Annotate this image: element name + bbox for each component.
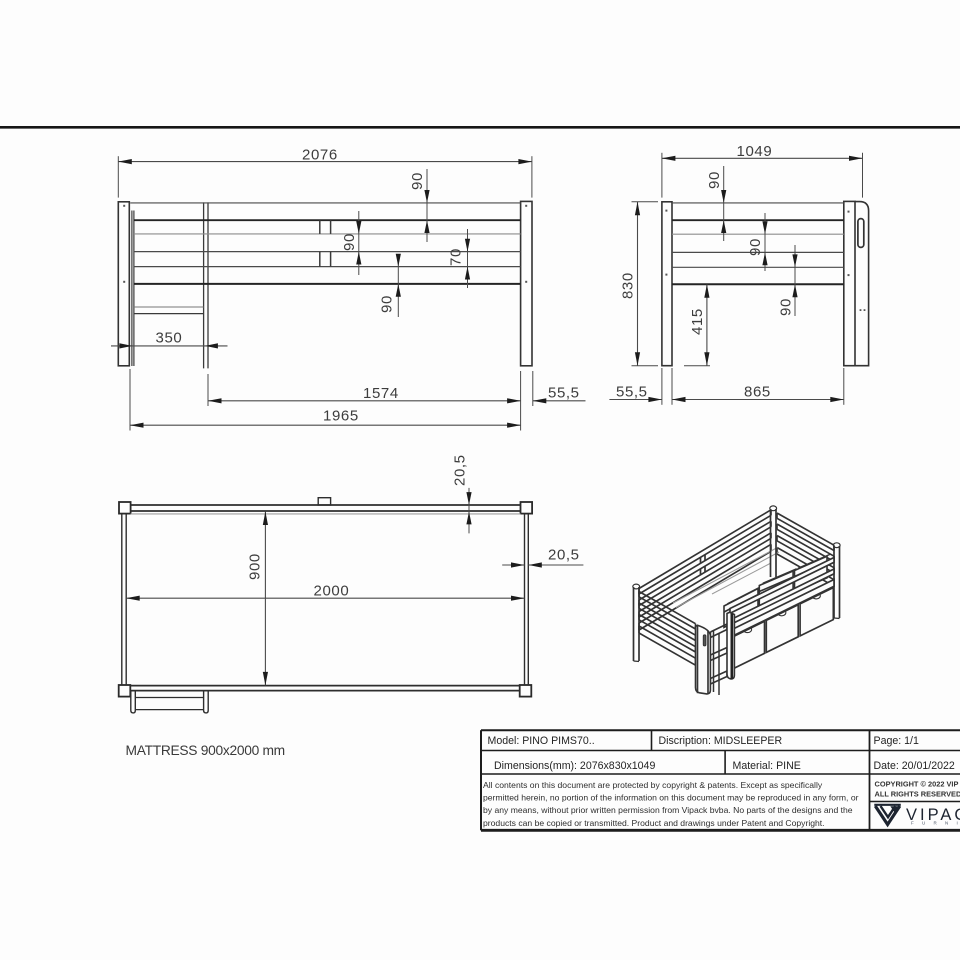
- svg-text:830: 830: [620, 272, 637, 299]
- svg-text:ALL RIGHTS RESERVED: ALL RIGHTS RESERVED: [875, 790, 960, 799]
- svg-text:MATTRESS 900x2000 mm: MATTRESS 900x2000 mm: [126, 743, 285, 758]
- svg-text:90: 90: [747, 238, 764, 256]
- svg-text:Page: 1/1: Page: 1/1: [874, 735, 919, 747]
- svg-text:Material: PINE: Material: PINE: [733, 760, 801, 772]
- svg-text:by any means, without prior wr: by any means, without prior written perm…: [483, 805, 853, 815]
- svg-text:products can be copied or tran: products can be copied or transmitted. P…: [483, 818, 825, 828]
- svg-text:1049: 1049: [737, 143, 773, 160]
- svg-text:415: 415: [689, 308, 706, 335]
- svg-text:90: 90: [341, 233, 358, 251]
- svg-text:1965: 1965: [323, 408, 359, 425]
- svg-text:865: 865: [744, 384, 771, 401]
- svg-text:55,5: 55,5: [616, 384, 648, 401]
- svg-text:900: 900: [247, 553, 264, 580]
- svg-text:20,5: 20,5: [452, 454, 469, 486]
- svg-text:90: 90: [778, 298, 795, 316]
- svg-text:Date: 20/01/2022: Date: 20/01/2022: [874, 760, 955, 772]
- svg-text:All contents on this document: All contents on this document are protec…: [483, 780, 823, 790]
- svg-text:Dimensions(mm): 2076x830x1049: Dimensions(mm): 2076x830x1049: [494, 760, 655, 772]
- svg-text:COPYRIGHT © 2022 VIP: COPYRIGHT © 2022 VIP: [875, 780, 959, 789]
- svg-text:90: 90: [379, 295, 396, 313]
- svg-text:1574: 1574: [363, 385, 399, 402]
- svg-text:2000: 2000: [314, 583, 350, 600]
- svg-text:permitted herein, no portion o: permitted herein, no portion of the info…: [483, 793, 859, 803]
- svg-text:Model: PINO PIMS70..: Model: PINO PIMS70..: [488, 735, 595, 747]
- svg-text:350: 350: [156, 330, 183, 347]
- svg-text:20,5: 20,5: [548, 547, 580, 564]
- svg-text:55,5: 55,5: [548, 385, 580, 402]
- svg-text:90: 90: [409, 172, 426, 190]
- svg-text:2076: 2076: [302, 147, 338, 164]
- svg-text:Discription: MIDSLEEPER: Discription: MIDSLEEPER: [659, 735, 783, 747]
- svg-text:F U R N I T: F U R N I T: [911, 821, 960, 826]
- svg-text:70: 70: [448, 248, 465, 266]
- svg-text:90: 90: [706, 171, 723, 189]
